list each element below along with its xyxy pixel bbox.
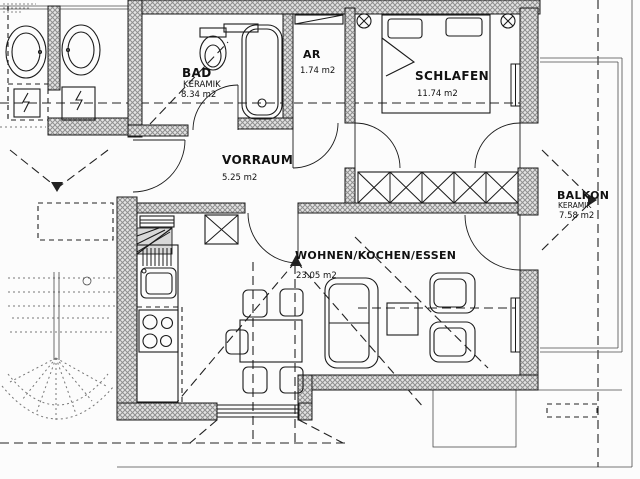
entry-door: [133, 140, 185, 192]
floor-plan-drawing: BAD KERAMIK 8.34 m2 AR 1.74 m2 SCHLAFEN …: [0, 0, 640, 479]
ar-shelf: [295, 15, 343, 24]
floor-plan: BAD KERAMIK 8.34 m2 AR 1.74 m2 SCHLAFEN …: [0, 0, 640, 479]
tub-south-wall: [238, 118, 293, 129]
bedroom-furniture: [357, 14, 518, 203]
wohnen-label: WOHNEN/KOCHEN/ESSEN: [295, 249, 456, 262]
north-wall: [128, 0, 540, 14]
ar-east-wall: [345, 8, 355, 123]
south-wall-dining-west: [117, 403, 217, 420]
balcony-door-living: [465, 215, 520, 270]
chair: [226, 330, 248, 354]
ar-label: AR: [303, 48, 321, 61]
balkon-finish: KERAMIK: [558, 201, 592, 210]
chair: [243, 367, 267, 393]
corridor-south-wall-west: [137, 203, 245, 213]
balcony-door-corridor: [475, 123, 520, 168]
schlafen-window: [511, 64, 520, 106]
kitchen-fixtures: [137, 215, 238, 402]
east-wall-upper: [520, 8, 538, 123]
west-wall-upper: [128, 0, 142, 137]
east-wall-lower: [520, 270, 538, 390]
skylight-dashed-outline: [38, 203, 113, 240]
corridor-south-wall-east: [298, 203, 538, 213]
electric-unit-left: [8, 84, 48, 120]
chair: [280, 289, 303, 316]
schlafen-door-stub: [345, 168, 355, 203]
stove-symbol: [139, 310, 178, 352]
sofa-symbol: [325, 278, 378, 368]
living-window: [511, 298, 520, 352]
bad-label: BAD: [182, 66, 212, 80]
neighbor-south-wall: [48, 118, 128, 135]
west-wall-lower: [117, 197, 137, 420]
chair: [243, 290, 267, 317]
wohnen-area: 23.05 m2: [296, 271, 337, 281]
east-wall-mid-block: [518, 168, 538, 215]
dining-table: [240, 320, 302, 362]
armchair-bottom: [430, 322, 475, 362]
ceiling-symbol-left: [357, 14, 371, 28]
bad-finish: KERAMIK: [183, 80, 221, 90]
sink-left-symbol: [6, 26, 46, 78]
bad-area: 8.34 m2: [181, 90, 216, 100]
balkon-area: 7.58 m2: [559, 211, 594, 221]
dining-window: [217, 405, 299, 417]
walls: [48, 0, 540, 420]
schlafen-label: SCHLAFEN: [415, 69, 489, 83]
sink-right-symbol: [62, 25, 100, 75]
ar-area: 1.74 m2: [300, 66, 335, 76]
wohnen-door: [248, 213, 298, 263]
wardrobe-symbol: [358, 172, 518, 203]
ceiling-symbol-right: [501, 14, 515, 28]
south-wall-living: [310, 375, 538, 390]
schlafen-area: 11.74 m2: [417, 89, 458, 99]
ar-door: [293, 123, 338, 168]
arrowhead: [51, 182, 63, 192]
room-labels: BAD KERAMIK 8.34 m2 AR 1.74 m2 SCHLAFEN …: [181, 48, 609, 281]
radiator: [140, 216, 174, 227]
vorraum-area: 5.25 m2: [222, 173, 257, 183]
armchair-top: [430, 273, 475, 313]
dining-furniture: [226, 289, 303, 393]
ar-west-wall: [283, 14, 293, 118]
schlafen-door: [355, 123, 400, 168]
bad-south-wall: [128, 125, 188, 136]
bathtub-symbol: [242, 25, 282, 119]
roof-structure-outline: [433, 390, 516, 447]
kitchen-sink-symbol: [141, 268, 176, 298]
neighbor-partition-wall: [48, 6, 60, 90]
windows: [217, 64, 520, 417]
south-wall-dining-east: [299, 403, 312, 420]
staircase: [2, 272, 118, 422]
vorraum-label: VORRAUM: [222, 153, 293, 167]
